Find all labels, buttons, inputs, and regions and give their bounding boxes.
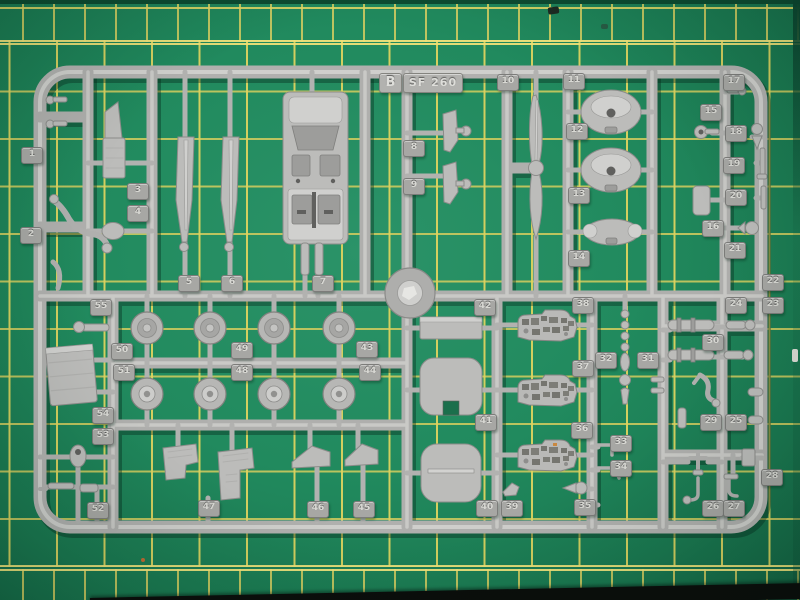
part-number-tag-12: 12 [566,123,588,140]
part-number-tag-3: 3 [127,183,149,200]
part-number-tag-11: 11 [563,73,585,90]
part-number-tag-24: 24 [725,297,747,314]
part-number-tag-10: 10 [497,74,519,91]
part-number-tag-23: 23 [762,297,784,314]
part-number-tag-14: 14 [568,250,590,267]
part-number-tag-1: 1 [21,147,43,164]
part-number-tag-49: 49 [231,342,253,359]
part-number-tag-18: 18 [725,125,747,142]
part-number-tag-15: 15 [700,104,722,121]
part-number-tag-6: 6 [221,275,243,292]
part-number-tag-53: 53 [92,428,114,445]
part-number-tag-4: 4 [127,205,149,222]
part-number-tag-16: 16 [702,220,724,237]
part-number-tag-46: 46 [307,501,329,518]
part-number-tag-30: 30 [702,334,724,351]
part-number-tag-13: 13 [568,187,590,204]
part-number-tag-20: 20 [725,189,747,206]
part-number-tag-52: 52 [87,502,109,519]
part-number-tag-37: 37 [572,360,594,377]
part-number-tag-25: 25 [725,414,747,431]
part-number-tag-51: 51 [113,364,135,381]
part-number-tag-28: 28 [761,469,783,486]
part-number-tag-48: 48 [231,364,253,381]
part-number-tag-22: 22 [762,274,784,291]
part-number-tag-9: 9 [403,178,425,195]
part-number-tag-44: 44 [359,364,381,381]
part-number-tag-54: 54 [92,407,114,424]
part-number-tag-42: 42 [474,299,496,316]
part-number-tag-35: 35 [574,499,596,516]
part-number-tag-21: 21 [724,242,746,259]
part-number-tag-32: 32 [595,352,617,369]
part-number-tag-55: 55 [90,299,112,316]
part-number-tag-50: 50 [111,343,133,360]
part-number-tag-33: 33 [610,435,632,452]
part-tags-layer: 1234567891011121314151617181920212223242… [0,0,800,600]
part-number-tag-41: 41 [475,414,497,431]
part-number-tag-40: 40 [476,500,498,517]
part-number-tag-2: 2 [20,227,42,244]
part-number-tag-17: 17 [723,74,745,91]
photo-model-sprue-on-cutting-mat: B SF 260 1234567891011121314151617181920… [0,0,800,600]
part-number-tag-29: 29 [700,414,722,431]
part-number-tag-26: 26 [702,500,724,517]
part-number-tag-7: 7 [312,275,334,292]
part-number-tag-39: 39 [501,500,523,517]
part-number-tag-43: 43 [356,341,378,358]
part-number-tag-5: 5 [178,275,200,292]
part-number-tag-8: 8 [403,140,425,157]
part-number-tag-31: 31 [637,352,659,369]
part-number-tag-38: 38 [572,297,594,314]
part-number-tag-47: 47 [198,500,220,517]
part-number-tag-34: 34 [610,460,632,477]
part-number-tag-27: 27 [723,500,745,517]
part-number-tag-36: 36 [571,422,593,439]
part-number-tag-45: 45 [353,501,375,518]
part-number-tag-19: 19 [723,157,745,174]
